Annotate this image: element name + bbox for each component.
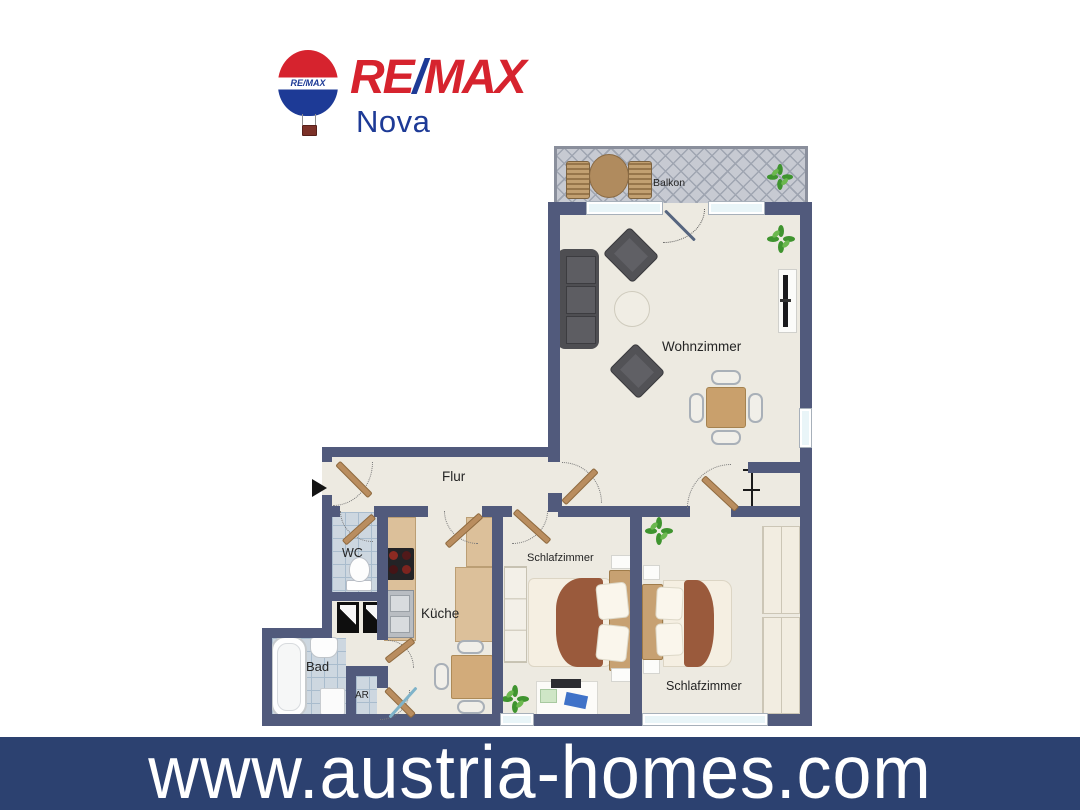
plant-icon	[766, 163, 794, 191]
pillow	[655, 586, 684, 620]
balloon-icon: RE/MAX	[278, 50, 342, 140]
wall	[322, 447, 332, 462]
bedside-shelf	[643, 659, 660, 674]
room-label-balkon: Balkon	[653, 177, 685, 189]
wall	[748, 462, 812, 473]
bedside-shelf	[643, 565, 660, 580]
balcony-edge-top	[554, 146, 808, 149]
coffee-table	[614, 291, 650, 327]
brand-text: RE/MAX	[350, 52, 525, 105]
balloon-basket	[302, 125, 317, 136]
kitchen-island-counter	[455, 567, 493, 642]
balcony-chair	[566, 161, 590, 199]
wall	[548, 493, 562, 512]
wall	[800, 202, 812, 408]
kitchen-chair	[457, 700, 485, 714]
nightstand	[611, 668, 631, 682]
plant-icon	[766, 224, 796, 254]
bathtub	[271, 636, 307, 718]
wall	[548, 202, 560, 462]
armchair-cushion	[614, 238, 648, 272]
wall	[377, 506, 388, 602]
stove-burner	[389, 565, 398, 574]
wall	[262, 628, 332, 638]
balcony-table	[589, 154, 629, 198]
window	[799, 408, 812, 448]
wall	[630, 506, 642, 726]
room-label-kueche: Küche	[421, 606, 459, 621]
window	[708, 201, 765, 215]
room-label-wohnzimmer: Wohnzimmer	[662, 339, 741, 354]
plant-icon	[500, 684, 530, 714]
balcony-edge-left	[554, 146, 557, 203]
laptop	[551, 679, 581, 688]
window	[500, 713, 534, 726]
plant-icon	[644, 516, 674, 546]
site-url: www.austria-homes.com	[0, 734, 1080, 810]
pillow	[655, 622, 684, 656]
stove	[386, 548, 414, 580]
tv-stand	[780, 299, 791, 302]
floorplan-page: RE/MAX RE/MAX Nova	[0, 0, 1080, 810]
wardrobe	[762, 526, 800, 614]
toilet-bowl	[349, 557, 370, 582]
shaft-icon	[337, 602, 359, 633]
entrance-arrow-icon	[312, 479, 327, 497]
kitchen-sink	[386, 590, 414, 638]
wardrobe	[504, 566, 527, 663]
pillow	[595, 623, 630, 662]
balloon-band-text: RE/MAX	[278, 78, 338, 88]
wall	[558, 506, 690, 517]
room-label-bad: Bad	[306, 659, 329, 674]
brand-re: RE	[350, 51, 413, 104]
wall	[262, 628, 272, 726]
brand-slash: /	[413, 51, 424, 104]
wall	[377, 600, 388, 640]
room-label-ar: AR	[355, 690, 369, 701]
desk-paper	[540, 689, 557, 703]
sofa-cushion	[566, 256, 596, 284]
site-banner: www.austria-homes.com	[0, 737, 1080, 810]
bed-blanket	[684, 580, 714, 667]
dining-chair	[748, 393, 763, 423]
sofa-cushion	[566, 286, 596, 314]
balcony-chair	[628, 161, 652, 199]
dining-chair	[711, 430, 741, 445]
sink-basin	[390, 616, 410, 633]
window	[642, 713, 768, 726]
dining-chair	[711, 370, 741, 385]
bathroom-sink	[310, 637, 338, 658]
stove-burner	[402, 565, 411, 574]
wall	[492, 506, 503, 726]
wall	[322, 447, 560, 457]
room-label-wc: WC	[342, 546, 363, 560]
kitchen-table	[451, 655, 493, 699]
armchair-cushion	[620, 354, 654, 388]
kitchen-chair	[457, 640, 484, 654]
wardrobe	[762, 617, 800, 714]
stove-burner	[402, 551, 411, 560]
sofa-cushion	[566, 316, 596, 344]
dining-chair	[689, 393, 704, 423]
balcony-edge-right	[805, 146, 808, 203]
nightstand	[611, 555, 631, 569]
brand-max: MAX	[424, 51, 525, 104]
wall	[768, 714, 812, 726]
sub-brand-text: Nova	[356, 104, 430, 140]
wall	[322, 506, 332, 638]
room-label-flur: Flur	[442, 469, 465, 484]
kitchen-chair	[434, 663, 449, 690]
washing-machine	[320, 688, 345, 715]
dining-table	[706, 387, 746, 428]
wall	[800, 448, 812, 726]
wall	[346, 666, 388, 676]
room-label-schlafzimmer-1: Schlafzimmer	[527, 552, 594, 564]
stove-burner	[389, 551, 398, 560]
room-label-schlafzimmer-2: Schlafzimmer	[666, 679, 742, 693]
window	[586, 201, 663, 215]
pillow	[595, 581, 630, 620]
sink-basin	[390, 595, 410, 612]
wall	[534, 714, 642, 726]
bathtub-basin	[277, 643, 301, 711]
balloon-ropes	[302, 114, 316, 125]
